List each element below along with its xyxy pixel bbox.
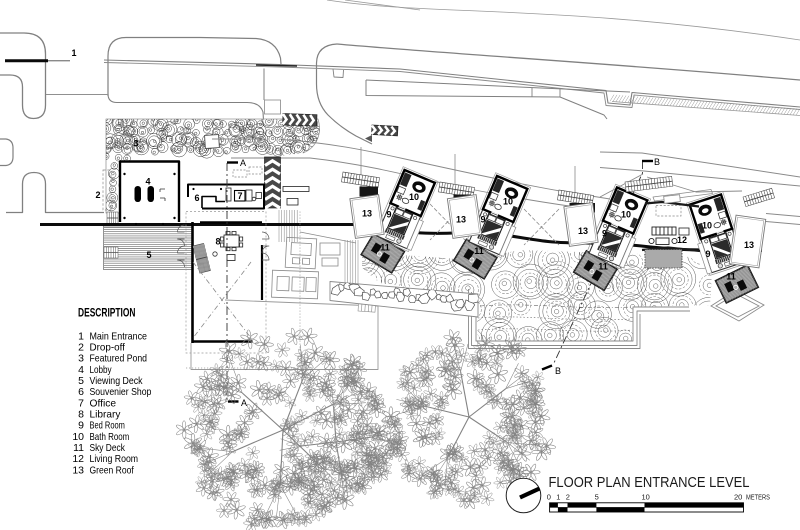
- svg-text:1: 1: [71, 48, 76, 58]
- svg-text:5: 5: [146, 250, 151, 260]
- svg-text:FLOOR PLAN ENTRANCE LEVEL: FLOOR PLAN ENTRANCE LEVEL: [549, 475, 750, 491]
- svg-text:7: 7: [237, 191, 242, 201]
- svg-text:DESCRIPTION: DESCRIPTION: [78, 308, 136, 320]
- svg-text:0: 0: [547, 493, 551, 502]
- svg-text:10: 10: [503, 197, 513, 207]
- svg-text:11: 11: [726, 272, 736, 282]
- svg-text:13: 13: [72, 464, 84, 476]
- svg-text:11: 11: [380, 243, 390, 253]
- svg-text:1: 1: [556, 493, 560, 502]
- svg-text:5: 5: [595, 493, 599, 502]
- svg-text:9: 9: [602, 229, 607, 239]
- svg-text:13: 13: [744, 240, 754, 250]
- svg-text:2: 2: [566, 493, 570, 502]
- svg-text:4: 4: [145, 177, 150, 187]
- svg-text:11: 11: [598, 262, 608, 272]
- svg-text:20: 20: [734, 493, 742, 502]
- svg-text:10: 10: [642, 493, 650, 502]
- svg-text:Green Roof: Green Roof: [90, 464, 134, 476]
- svg-text:B: B: [654, 157, 660, 167]
- svg-text:3: 3: [133, 139, 138, 149]
- svg-text:A: A: [241, 398, 247, 408]
- svg-text:2: 2: [95, 190, 100, 200]
- svg-text:12: 12: [677, 235, 687, 245]
- svg-text:9: 9: [705, 249, 710, 259]
- svg-text:13: 13: [362, 209, 372, 219]
- svg-text:10: 10: [621, 210, 631, 220]
- svg-text:11: 11: [474, 246, 484, 256]
- svg-text:8: 8: [215, 237, 220, 247]
- svg-text:B: B: [555, 366, 561, 376]
- svg-text:A: A: [240, 158, 246, 168]
- svg-text:9: 9: [480, 215, 485, 225]
- svg-text:10: 10: [702, 221, 712, 231]
- svg-text:6: 6: [194, 193, 199, 203]
- svg-text:9: 9: [386, 210, 391, 220]
- svg-text:10: 10: [409, 192, 419, 202]
- svg-text:13: 13: [456, 215, 466, 225]
- svg-text:METERS: METERS: [746, 495, 770, 502]
- svg-text:13: 13: [578, 226, 588, 236]
